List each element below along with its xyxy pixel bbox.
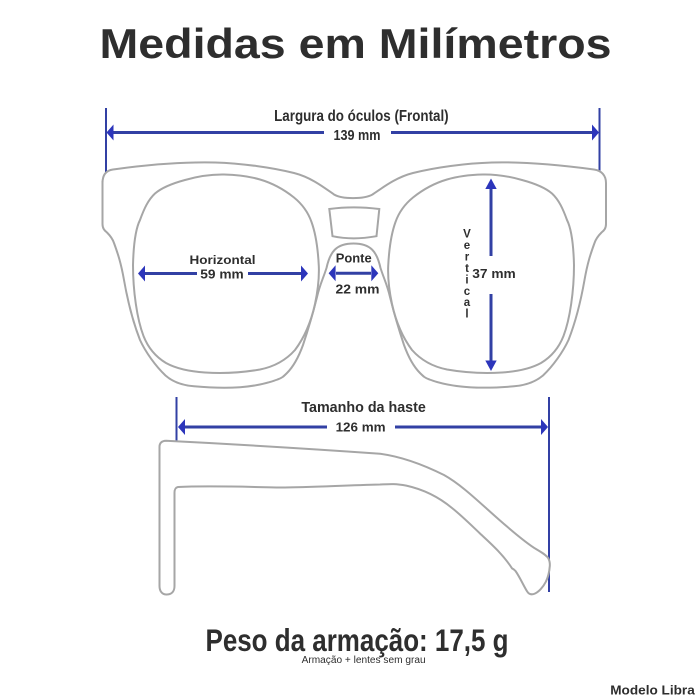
svg-text:126 mm: 126 mm — [336, 420, 386, 435]
svg-text:22 mm: 22 mm — [336, 282, 380, 297]
svg-text:37 mm: 37 mm — [472, 266, 516, 281]
svg-text:Horizontal: Horizontal — [190, 253, 256, 267]
svg-text:V: V — [463, 229, 471, 241]
svg-text:l: l — [465, 309, 468, 321]
svg-text:e: e — [464, 240, 470, 252]
svg-text:t: t — [465, 263, 469, 275]
svg-text:Peso da armação: 17,5 g: Peso da armação: 17,5 g — [206, 622, 509, 658]
svg-text:59 mm: 59 mm — [200, 267, 244, 282]
svg-text:Modelo Libra: Modelo Libra — [610, 683, 695, 698]
svg-text:Medidas em Milímetros: Medidas em Milímetros — [100, 20, 612, 67]
svg-text:i: i — [465, 274, 468, 286]
svg-text:c: c — [464, 286, 471, 298]
svg-text:Armação + lentes sem grau: Armação + lentes sem grau — [302, 655, 426, 666]
svg-text:r: r — [465, 251, 470, 263]
svg-text:a: a — [464, 297, 471, 309]
svg-text:Largura do óculos (Frontal): Largura do óculos (Frontal) — [274, 108, 449, 125]
svg-text:139 mm: 139 mm — [334, 127, 381, 144]
svg-text:Ponte: Ponte — [336, 251, 372, 266]
svg-text:Tamanho da haste: Tamanho da haste — [301, 400, 426, 416]
